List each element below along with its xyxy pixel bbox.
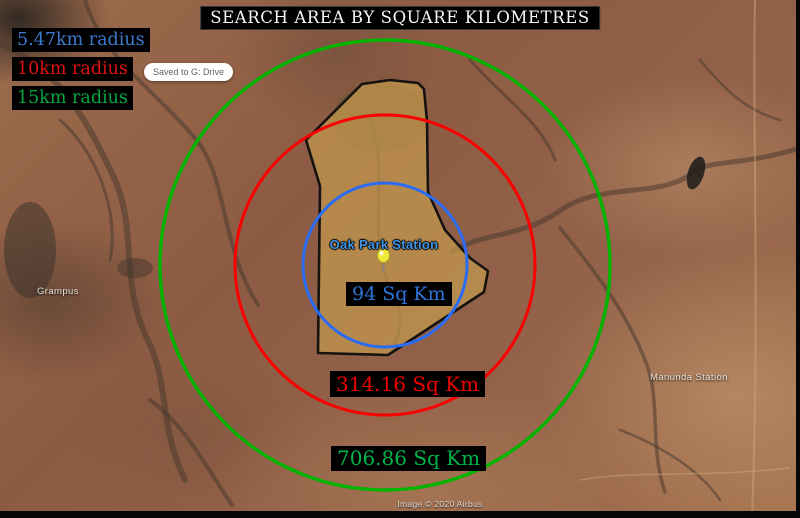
area-label-314-sq-km: 314.16 Sq Km: [330, 371, 485, 397]
letterbox-right-bar: [796, 0, 800, 518]
satellite-map-canvas[interactable]: SEARCH AREA BY SQUARE KILOMETRES 5.47km …: [0, 0, 800, 518]
letterbox-bottom-bar: [0, 511, 800, 518]
placemark-label-oak-park-station[interactable]: Oak Park Station: [330, 237, 439, 252]
legend-item-10km: 10km radius: [12, 57, 133, 81]
radius-legend: 5.47km radius 10km radius 15km radius: [12, 28, 150, 115]
map-label-manunda-station: Manunda Station: [650, 372, 728, 383]
area-label-706-sq-km: 706.86 Sq Km: [331, 446, 486, 471]
property-boundary-polygon[interactable]: [306, 80, 488, 355]
map-label-grampus: Grampus: [37, 286, 79, 297]
imagery-attribution: Image © 2020 Airbus: [397, 499, 482, 509]
area-label-94-sq-km: 94 Sq Km: [346, 282, 452, 306]
legend-item-15km: 15km radius: [12, 86, 133, 110]
saved-to-drive-toast: Saved to G: Drive: [144, 63, 233, 81]
map-title-banner: SEARCH AREA BY SQUARE KILOMETRES: [200, 6, 600, 30]
legend-item-5km: 5.47km radius: [12, 28, 150, 52]
